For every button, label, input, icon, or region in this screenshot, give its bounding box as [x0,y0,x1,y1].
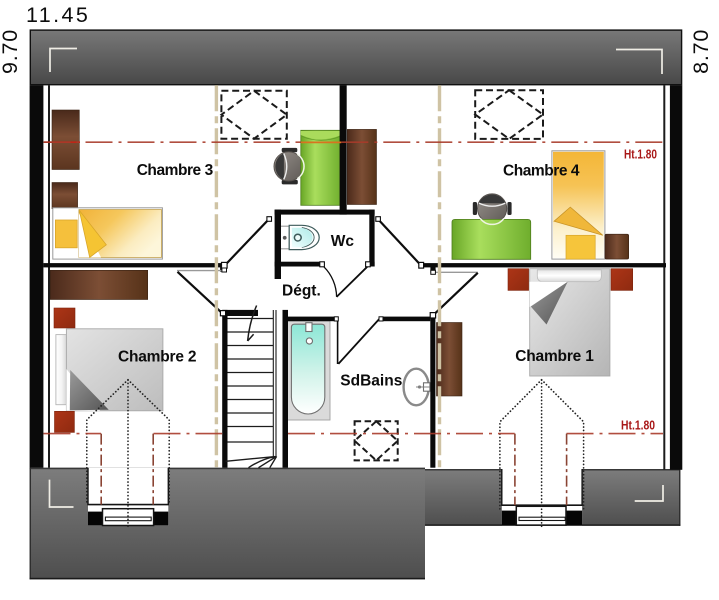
svg-text:Ht.1.80: Ht.1.80 [621,418,655,433]
svg-text:Dégt.: Dégt. [282,283,321,300]
svg-text:Chambre 2: Chambre 2 [118,348,196,365]
svg-text:8.70: 8.70 [689,29,713,74]
svg-text:Wc: Wc [331,233,355,250]
svg-text:SdBains: SdBains [340,373,402,390]
svg-text:11.45: 11.45 [26,3,90,27]
svg-text:Chambre 4: Chambre 4 [503,163,580,180]
svg-text:Chambre 1: Chambre 1 [515,348,594,365]
svg-text:9.70: 9.70 [0,29,22,74]
svg-text:Ht.1.80: Ht.1.80 [624,147,657,162]
svg-text:Chambre 3: Chambre 3 [137,162,214,179]
